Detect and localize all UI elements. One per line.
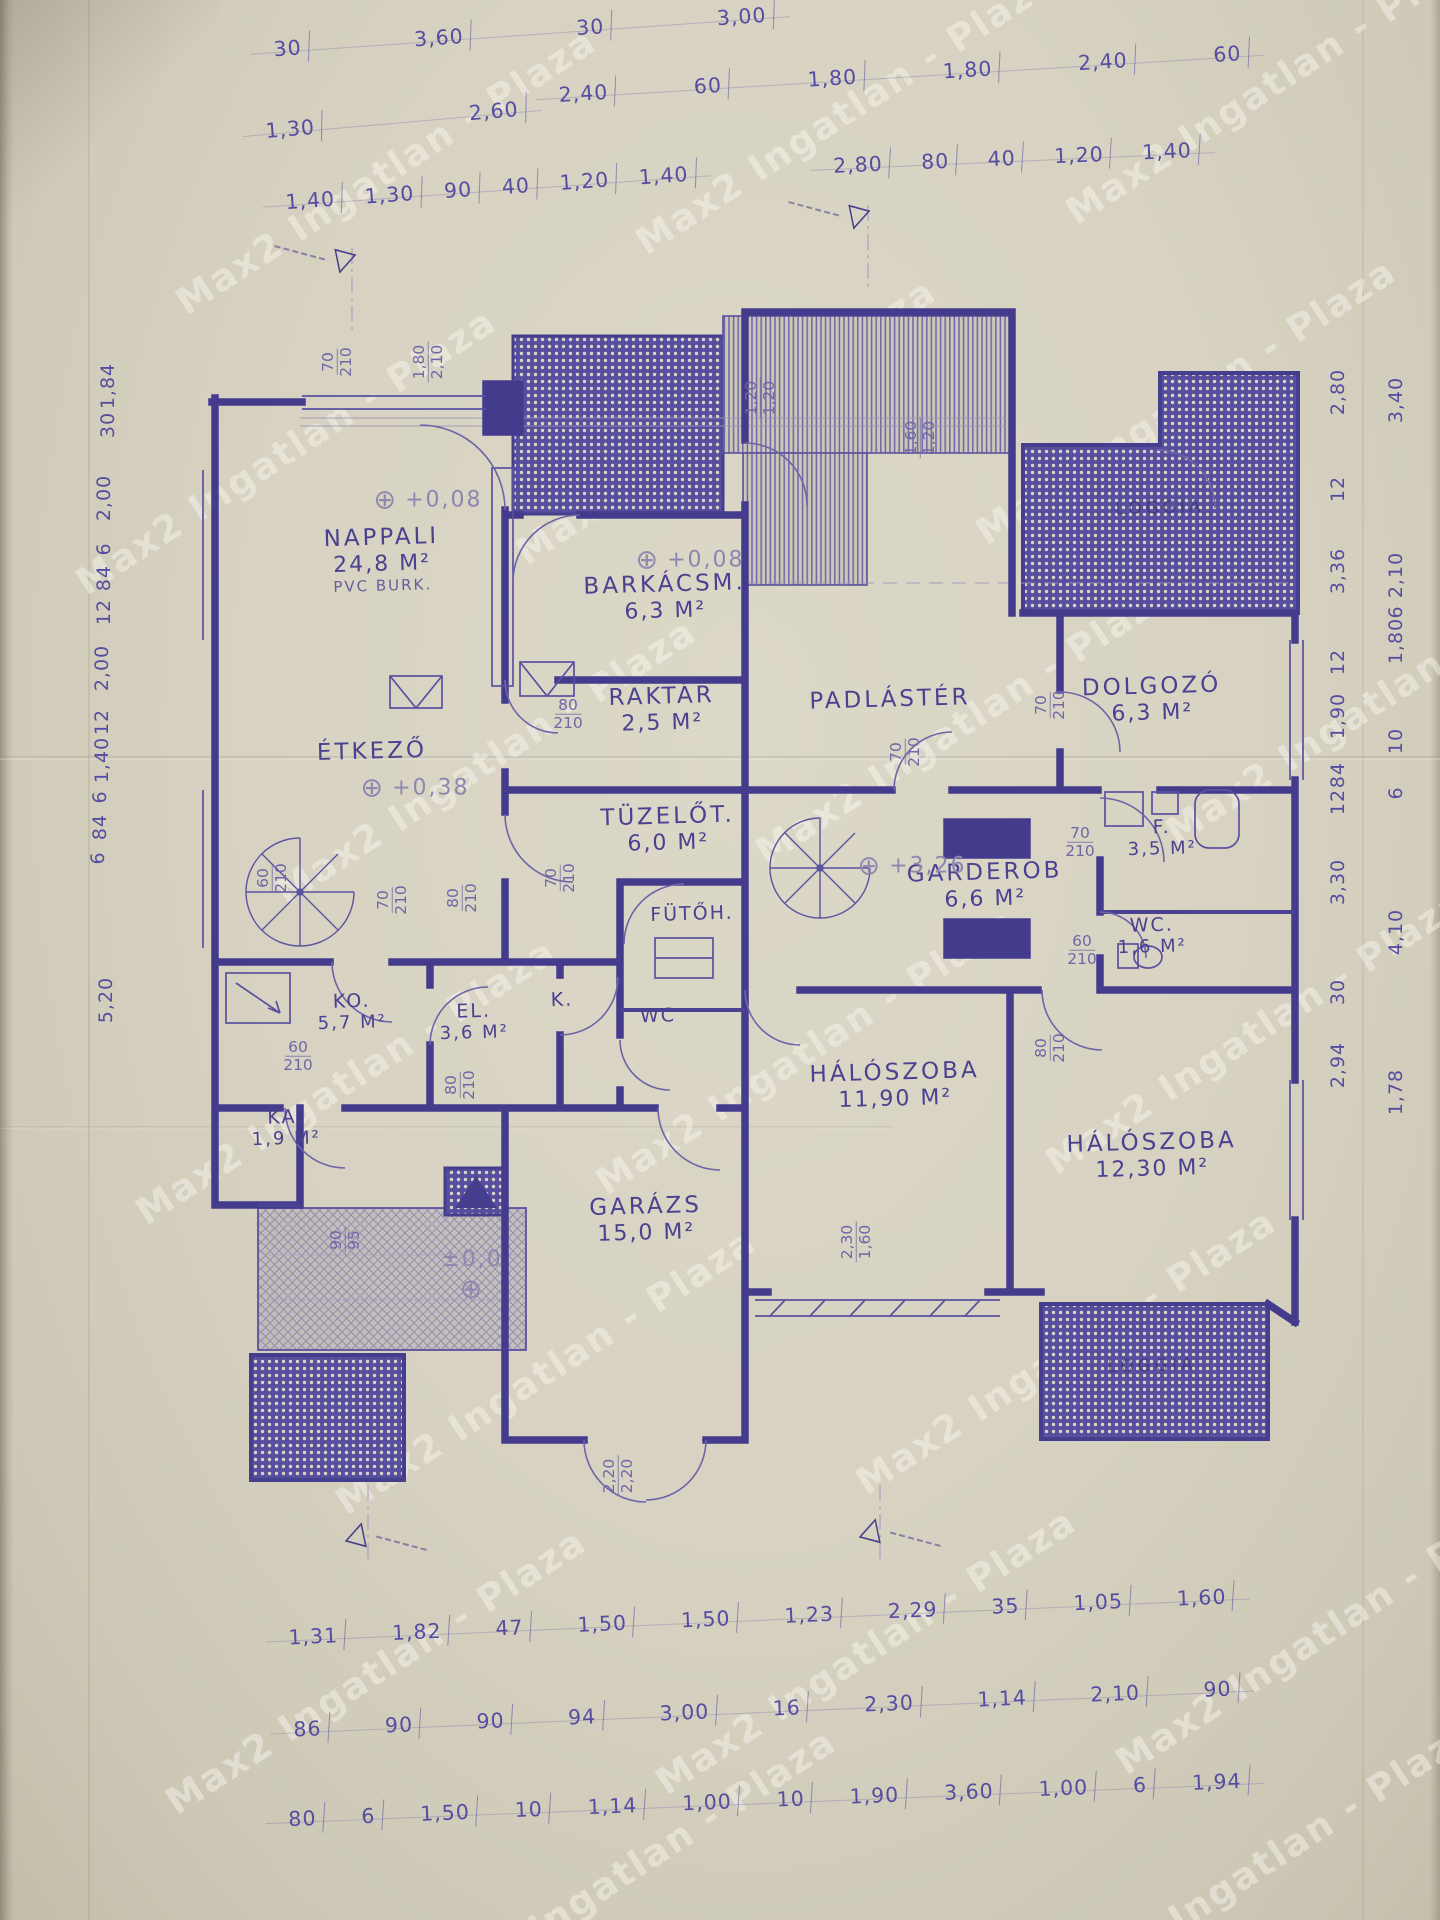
dimension-value: 1,78 — [1385, 1069, 1407, 1115]
dimension-value: 1,80 — [1385, 618, 1407, 664]
dimension-value: 10 — [1385, 728, 1407, 754]
dimension-value: 1,90 — [1327, 693, 1349, 739]
side-dimensions-right: 2,80 12 3,36 12 1,90 84 12 3,30 30 2,94 … — [0, 0, 1440, 1920]
dimension-value: 12 — [1327, 649, 1349, 675]
dimension-value: 2,94 — [1327, 1042, 1349, 1088]
dimension-value: 2,10 — [1385, 552, 1407, 598]
dimension-value: 12 — [1327, 476, 1349, 502]
dimension-value: 2,80 — [1327, 369, 1349, 415]
dimension-value: 6 — [1385, 786, 1407, 799]
dimension-value: 6 — [1385, 605, 1407, 618]
dimension-value: 30 — [1327, 979, 1349, 1005]
dimension-value: 3,30 — [1327, 859, 1349, 905]
scanned-floor-plan-page: Max2 Ingatlan - Plaza Max2 Ingatlan - Pl… — [0, 0, 1440, 1920]
dimension-value: 3,40 — [1385, 377, 1407, 423]
dimension-value: 12 — [1327, 789, 1349, 815]
dimension-value: 3,36 — [1327, 548, 1349, 594]
dimension-value: 4,10 — [1385, 909, 1407, 955]
dimension-value: 84 — [1327, 762, 1349, 788]
